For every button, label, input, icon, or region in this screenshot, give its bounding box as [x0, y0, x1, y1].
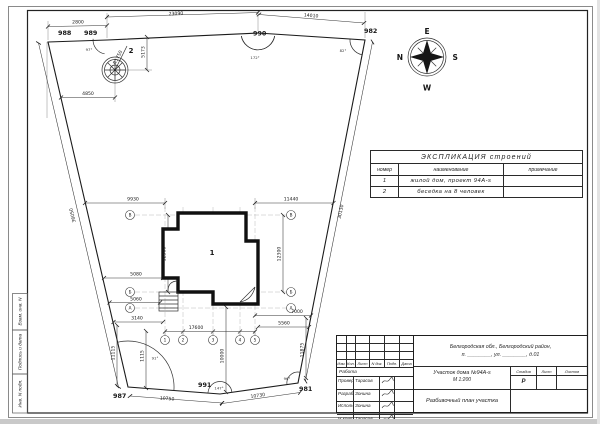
dim-3140: 3140: [131, 316, 143, 322]
dimension-lines: [39, 13, 373, 404]
compass-west: W: [423, 84, 432, 93]
axis-label: Б: [290, 290, 293, 295]
axis-label: 5: [254, 338, 257, 343]
stage-header-stadia: Стадия: [511, 367, 537, 375]
work-row: Работа: [337, 368, 413, 376]
header-list: Лист: [356, 360, 370, 367]
header-ndoc: N док.: [370, 360, 385, 367]
compass-rose: E S W N: [397, 27, 458, 93]
list-value: [537, 376, 557, 389]
gazebo-number: 2: [129, 47, 134, 55]
side-label-inv: Инв. N подл.: [18, 379, 24, 407]
compass-north: N: [397, 53, 403, 62]
header-izm: Изм.: [337, 360, 347, 367]
angle-991: 147°: [214, 386, 223, 391]
house-walls: [163, 213, 258, 304]
explication-col-note: примечание: [504, 164, 583, 176]
row-number: 1: [371, 176, 399, 187]
dim-2800: 2800: [72, 20, 84, 26]
dim-5060: 5060: [130, 297, 142, 303]
dim-9930: 9930: [127, 197, 139, 203]
point-981: 981: [299, 385, 312, 393]
address-line1: Белгородская обл., Белгородский район,: [414, 343, 587, 351]
address-line2: п. ________, ул. ________, д.01: [414, 351, 587, 359]
entrance-stairs: [159, 292, 178, 311]
row-name: жилой дом, проект 94А-s: [399, 176, 504, 187]
date-cell: [395, 377, 413, 389]
explication-col-number: номер: [371, 164, 399, 176]
dim-12300-left: 12300: [162, 247, 168, 262]
role: Исполнил: [337, 402, 354, 414]
row-number: 2: [371, 187, 399, 198]
dim-10750: 10750: [160, 395, 175, 402]
signature-cell: [380, 402, 395, 414]
stage-block: Стадия Лист Листов Р: [511, 367, 587, 389]
dim-5080: 5080: [130, 272, 142, 278]
dim-17600: 17600: [189, 325, 204, 331]
role: Провер.: [337, 377, 354, 389]
role-row: Провер. Тарасов: [337, 377, 413, 390]
dim-4850: 4850: [82, 91, 94, 97]
side-label-boxes: Взам. инв. N Подпись и дата Инв. N подл.: [13, 294, 28, 414]
dim-5560: 5560: [278, 321, 290, 327]
axis-label: А: [129, 306, 132, 311]
title-block: Изм. Кол. Лист N док. Подп. Дата Работа …: [336, 335, 588, 413]
compass-east: E: [424, 27, 429, 36]
explication-row: 1 жилой дом, проект 94А-s: [371, 176, 583, 187]
compass-south: S: [453, 53, 458, 62]
object-cell: Участок дома №94А-s М 1:200: [414, 367, 511, 389]
angle-990: 172°: [250, 55, 259, 60]
stage-value: Р: [511, 376, 537, 389]
explication-row: 2 беседка на 8 человек: [371, 187, 583, 198]
role-row: Исполнил Зонина: [337, 402, 413, 415]
angle-982: 82°: [340, 48, 347, 53]
axis-label: 2: [182, 338, 185, 343]
project-address: Белгородская обл., Белгородский район, п…: [414, 336, 587, 367]
axis-label: 4: [239, 338, 242, 343]
axis-label: В: [129, 213, 132, 218]
dim-5173: 5173: [141, 46, 147, 58]
signature-mark: [381, 377, 394, 385]
dim-1115: 1115: [140, 350, 146, 362]
dim-36050: 36050: [68, 207, 77, 223]
signature-mark: [381, 402, 394, 410]
role: Разраб.: [337, 390, 354, 402]
object-title: Участок дома №94А-s: [414, 370, 510, 376]
drawing-sheet: Взам. инв. N Подпись и дата Инв. N подл.…: [0, 0, 600, 424]
signature-mark: [381, 390, 394, 398]
row-note: [504, 187, 583, 198]
angle-989: 97°: [86, 47, 93, 52]
header-kol: Кол.: [347, 360, 356, 367]
org-cell: [511, 390, 587, 412]
axis-label: Б: [129, 290, 132, 295]
axis-label: В: [290, 213, 293, 218]
point-990: 990: [253, 30, 267, 38]
side-label-vzam: Взам. инв. N: [18, 297, 24, 325]
dim-11440: 11440: [284, 197, 299, 203]
header-data: Дата: [400, 360, 413, 367]
axis-label: 1: [164, 338, 167, 343]
document-title: Разбивочный план участка: [414, 390, 511, 412]
dim-30130: 30130: [337, 204, 346, 220]
dim-7000: 7000: [291, 309, 303, 315]
explication-title: ЭКСПЛИКАЦИЯ строений: [371, 151, 583, 164]
dim-11875: 11875: [300, 343, 306, 358]
gazebo-radius: R1750: [112, 49, 124, 65]
date-cell: [395, 390, 413, 402]
row-note: [504, 176, 583, 187]
house-plan: [159, 213, 258, 311]
axis-label: 3: [212, 338, 215, 343]
stage-header-list: Лист: [537, 367, 557, 375]
role-name: Тарасов: [354, 377, 380, 389]
role-name: Зонина: [354, 402, 380, 414]
dim-23090: 23090: [169, 11, 184, 18]
house-number: 1: [210, 249, 215, 257]
explication-table: ЭКСПЛИКАЦИЯ строений номер наименование …: [370, 150, 583, 198]
explication-col-name: наименование: [399, 164, 504, 176]
dim-14010: 14010: [304, 12, 319, 19]
side-label-podpis: Подпись и дата: [18, 334, 24, 371]
point-991: 991: [198, 381, 211, 389]
listov-value: [557, 376, 587, 389]
date-cell: [395, 402, 413, 414]
role-name: Зонина: [354, 390, 380, 402]
angle-987: 91°: [152, 356, 159, 361]
point-982: 982: [364, 27, 377, 35]
title-block-revision: Изм. Кол. Лист N док. Подп. Дата Работа …: [337, 336, 414, 412]
dim-11115: 11115: [111, 346, 117, 361]
header-podp: Подп.: [385, 360, 400, 367]
angle-981: 96°: [284, 376, 291, 381]
stage-header-listov: Листов: [557, 367, 587, 375]
signature-cell: [380, 390, 395, 402]
page-edge-shadow-bottom: [0, 419, 600, 424]
role-row: Разраб. Зонина: [337, 390, 413, 403]
signature-cell: [380, 377, 395, 389]
point-987: 987: [113, 392, 126, 400]
object-scale: М 1:200: [414, 377, 510, 383]
point-988: 988: [58, 29, 72, 37]
row-name: беседка на 8 человек: [399, 187, 504, 198]
point-989: 989: [84, 29, 98, 37]
dim-10730: 10730: [250, 392, 265, 400]
dim-12300-right: 12300: [277, 247, 283, 262]
dim-10000: 10000: [220, 349, 226, 364]
